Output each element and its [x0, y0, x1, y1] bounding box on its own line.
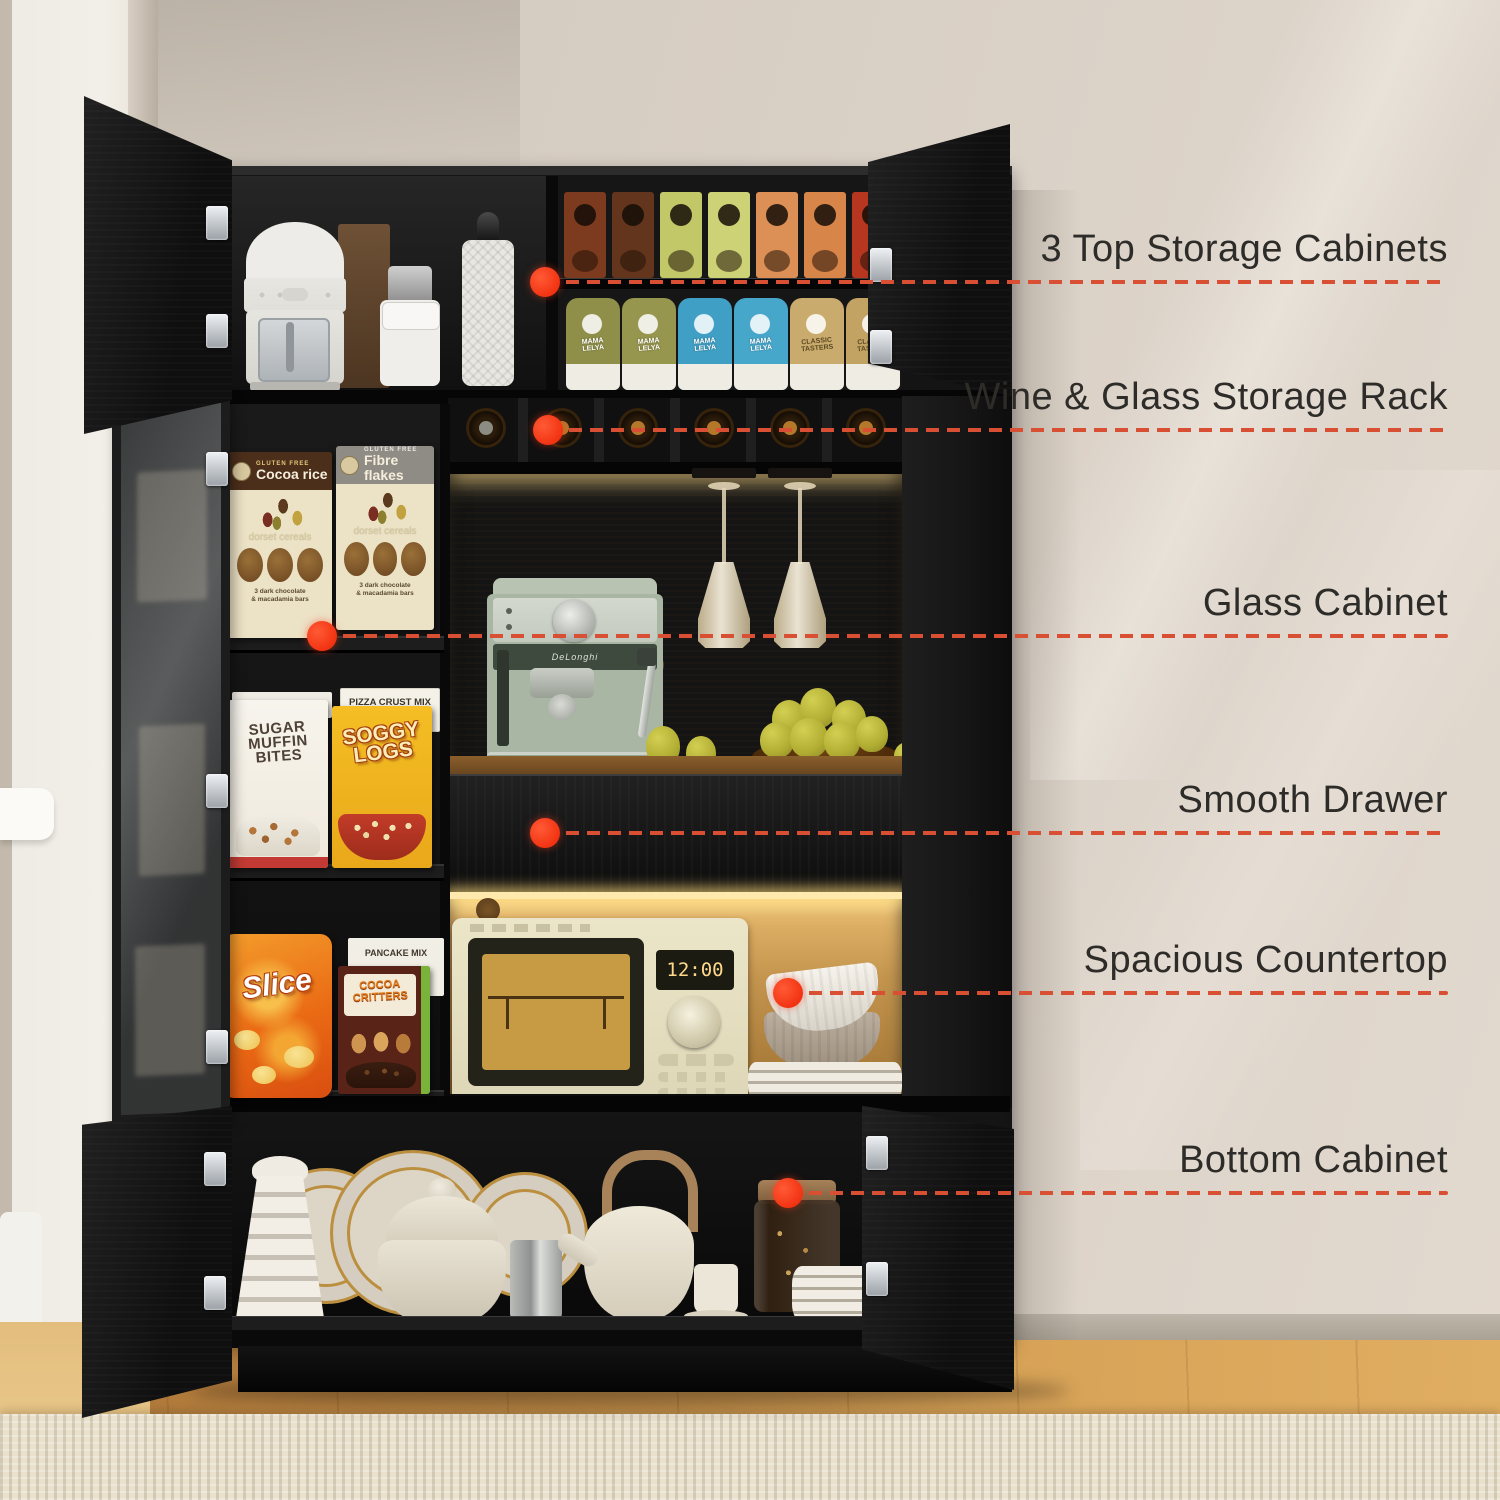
granola-window — [401, 542, 426, 576]
granola-window — [373, 542, 398, 576]
snack-box — [564, 192, 606, 278]
espresso-water-window — [497, 650, 509, 746]
pepper-mill — [462, 240, 514, 386]
microwave-buttons — [658, 1072, 734, 1082]
callout-dot-wine-rack — [533, 415, 563, 445]
pear — [790, 718, 828, 758]
teapot — [584, 1206, 694, 1320]
doorway-edge — [0, 0, 12, 1332]
box-bottom-strip — [228, 857, 328, 868]
door-hinge — [866, 1262, 888, 1296]
drawer-front — [448, 774, 904, 899]
metal-cup — [510, 1240, 562, 1322]
door-hinge — [206, 452, 228, 486]
carafe-handle — [286, 322, 294, 372]
callout-line-top-storage — [545, 280, 1448, 284]
snack-bag: MAMA LELYA — [622, 298, 676, 390]
snack-box — [660, 192, 702, 278]
cereal-header-text: GLUTEN FREE Cocoa rice — [256, 461, 328, 482]
callout-label-drawer: Smooth Drawer — [1178, 779, 1448, 822]
tureen — [378, 1240, 506, 1324]
cereal-bowl-art — [236, 814, 320, 856]
glass-reflection — [139, 724, 205, 877]
glass-cabinet-divider — [440, 404, 450, 1110]
cereal-box-cocoa-rice: GLUTEN FREE Cocoa rice dorset cereals 3 … — [228, 452, 332, 638]
slice-label: Slice — [222, 961, 332, 1010]
granola-windows — [344, 542, 426, 578]
cereal-subtitle: 3 dark chocolate & macadamia bars — [336, 582, 434, 598]
snack-bag-label: MAMA LELYA — [622, 336, 676, 355]
cereal-box-header: GLUTEN FREE Fibre flakes — [336, 446, 434, 484]
cereal-box-fibre-flakes: GLUTEN FREE Fibre flakes dorset cereals … — [336, 446, 434, 630]
callout-line-glass-cabinet — [322, 634, 1448, 638]
espresso-brand-band: DeLonghi — [493, 644, 657, 670]
cabinet-wall-shadow — [1008, 190, 1080, 1340]
area-rug — [0, 1414, 1500, 1500]
glass-reflection — [137, 469, 207, 602]
glass-pane — [121, 403, 221, 1115]
cereal-header-text: GLUTEN FREE Fibre flakes — [364, 447, 430, 483]
callout-label-top-storage: 3 Top Storage Cabinets — [1041, 228, 1448, 271]
door-hinge — [204, 1152, 226, 1186]
door-hinge — [206, 206, 228, 240]
chip-art — [234, 1030, 260, 1050]
cabinet-right-panel — [902, 396, 1012, 1108]
granola-window — [267, 548, 293, 582]
granola-window — [344, 542, 369, 576]
door-hinge — [206, 774, 228, 808]
snack-bag-label: MAMA LELYA — [678, 336, 732, 355]
snack-bag-label: MAMA LELYA — [566, 336, 620, 355]
cocoa-critters-label: COCOA CRITTERS — [343, 977, 416, 1005]
cereal-box-body: dorset cereals 3 dark chocolate & macada… — [228, 490, 332, 638]
callout-dot-drawer — [530, 818, 560, 848]
callout-line-drawer — [545, 831, 1448, 835]
microwave-display: 12:00 — [656, 950, 734, 990]
snack-box — [756, 192, 798, 278]
wine-rack-shelf — [448, 462, 904, 474]
side-table-glimpse — [0, 788, 54, 840]
organic-badge-icon — [340, 456, 359, 475]
cereal-bowl-art — [346, 1062, 416, 1088]
wine-bottle — [466, 408, 506, 448]
callout-line-wine-rack — [548, 428, 1448, 432]
callout-dot-bottom-cabinet — [773, 1178, 803, 1208]
microwave-vents — [470, 924, 590, 932]
cereal-brand: dorset cereals — [336, 526, 434, 537]
soggy-logs-label: SOGGY LOGS — [332, 718, 432, 768]
snack-bag-label: MAMA LELYA — [734, 336, 788, 355]
snack-box — [612, 192, 654, 278]
chip-art — [252, 1066, 276, 1084]
cereal-bowl-art — [338, 814, 426, 860]
soggy-logs-box: SOGGY LOGS — [332, 706, 432, 868]
chip-art — [284, 1046, 314, 1068]
small-cup — [694, 1264, 738, 1314]
led-light-strip — [448, 892, 904, 899]
espresso-portafilter — [548, 694, 576, 720]
door-hinge — [204, 1276, 226, 1310]
microwave-knob — [668, 996, 720, 1048]
organic-badge-icon — [232, 462, 251, 481]
grinder-jar-glass — [382, 302, 440, 330]
callout-dot-countertop — [773, 978, 803, 1008]
pear — [824, 722, 860, 760]
grinder-jar-lid — [388, 266, 432, 304]
espresso-indicator-light — [506, 624, 512, 630]
snack-bag: MAMA LELYA — [734, 298, 788, 390]
granola-window — [237, 548, 263, 582]
callout-line-bottom-cabinet — [788, 1191, 1448, 1195]
snack-bag: MAMA LELYA — [678, 298, 732, 390]
callout-dot-top-storage — [530, 267, 560, 297]
door-hinge — [870, 248, 892, 282]
label-panel: COCOA CRITTERS — [344, 974, 416, 1016]
snack-bag: MAMA LELYA — [566, 298, 620, 390]
pear — [760, 722, 794, 758]
steam-wand-handle — [637, 648, 657, 666]
callout-label-glass-cabinet: Glass Cabinet — [1203, 582, 1448, 625]
cereal-box-body: dorset cereals 3 dark chocolate & macada… — [336, 484, 434, 630]
snack-box — [804, 192, 846, 278]
door-hinge — [870, 330, 892, 364]
sugar-muffin-bites-box: SUGAR MUFFIN BITES — [228, 700, 328, 868]
coffee-maker-button — [282, 288, 308, 301]
cereal-box-header: GLUTEN FREE Cocoa rice — [228, 452, 332, 490]
wine-rack-divider — [518, 398, 528, 464]
cereal-subtitle: 3 dark chocolate & macadamia bars — [228, 588, 332, 604]
seed-illustration — [249, 496, 311, 530]
granola-window — [297, 548, 323, 582]
wine-glass-stem — [722, 488, 726, 564]
wine-glass-stem — [798, 488, 802, 564]
snack-box — [708, 192, 750, 278]
coffee-carafe — [258, 318, 330, 382]
callout-label-countertop: Spacious Countertop — [1084, 939, 1448, 982]
stemware-rail — [692, 468, 756, 478]
sugar-muffin-label: SUGAR MUFFIN BITES — [228, 719, 328, 768]
product-scene: MAMA LELYA MAMA LELYA MAMA LELYA MAMA LE… — [0, 0, 1500, 1500]
slice-chips-bag: Slice — [222, 934, 332, 1098]
door-hinge — [206, 314, 228, 348]
pear — [856, 716, 888, 752]
niche-countertop — [448, 756, 904, 774]
callout-dot-glass-cabinet — [307, 621, 337, 651]
cereal-brand: dorset cereals — [228, 532, 332, 543]
cereal-name: Cocoa rice — [256, 467, 328, 482]
stemware-rail — [768, 468, 832, 478]
side-chair-glimpse — [0, 1212, 42, 1330]
callout-label-bottom-cabinet: Bottom Cabinet — [1179, 1139, 1448, 1182]
mice-art — [344, 1022, 418, 1058]
microwave-buttons — [658, 1054, 734, 1066]
glass-reflection — [135, 944, 205, 1077]
snack-bag: CLASSIC TASTERS — [790, 298, 844, 390]
door-hinge — [866, 1136, 888, 1170]
cocoa-critters-box: COCOA CRITTERS — [338, 966, 430, 1094]
callout-line-countertop — [788, 991, 1448, 995]
seed-illustration — [356, 490, 415, 524]
callout-label-wine-rack: Wine & Glass Storage Rack — [965, 376, 1448, 419]
microwave-rack — [488, 996, 624, 1029]
door-hinge — [206, 1030, 228, 1064]
espresso-indicator-light — [506, 608, 512, 614]
cabinet-shelf — [215, 1096, 1010, 1112]
snack-bag-label: CLASSIC TASTERS — [790, 336, 844, 355]
granola-windows — [236, 548, 323, 584]
cereal-name: Fibre flakes — [364, 453, 430, 483]
glass-door-open — [112, 393, 230, 1124]
box-edge-strip — [421, 966, 430, 1094]
